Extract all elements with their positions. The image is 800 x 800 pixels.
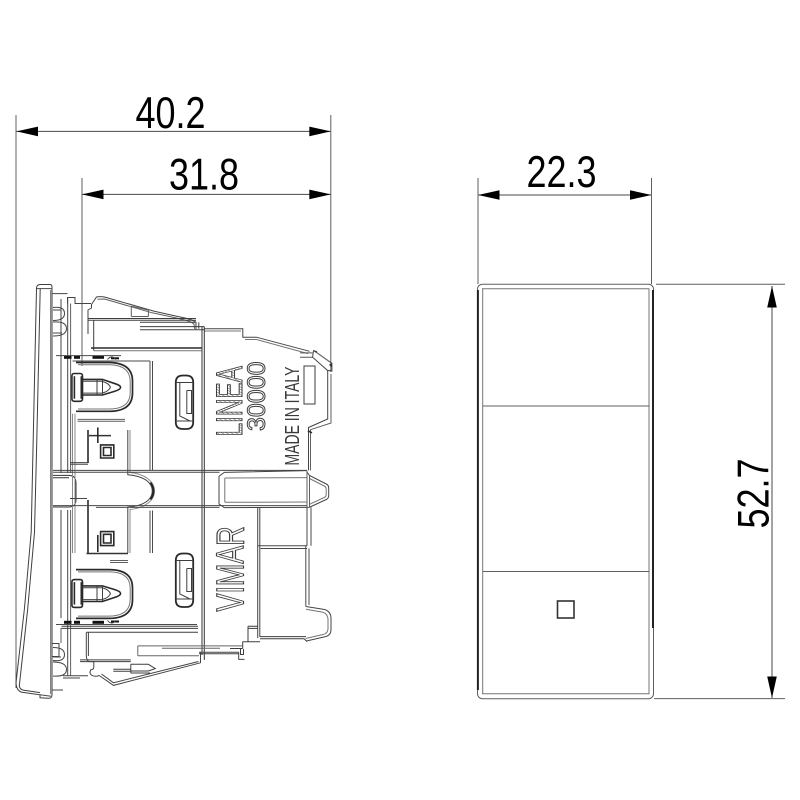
svg-text:30000: 30000 xyxy=(243,361,271,431)
svg-text:52.7: 52.7 xyxy=(728,458,778,528)
svg-text:40.2: 40.2 xyxy=(135,87,205,137)
svg-text:31.8: 31.8 xyxy=(169,149,239,199)
svg-text:VIMAR: VIMAR xyxy=(210,526,253,611)
svg-text:22.3: 22.3 xyxy=(526,146,596,196)
svg-text:MADE IN ITALY: MADE IN ITALY xyxy=(280,366,303,465)
